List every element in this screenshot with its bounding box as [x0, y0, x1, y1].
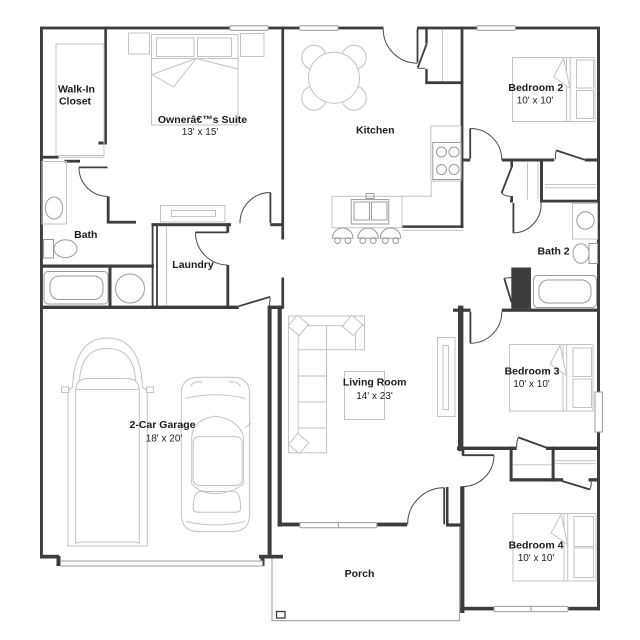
svg-text:Porch: Porch: [345, 568, 375, 580]
svg-text:14' x 23': 14' x 23': [356, 391, 393, 402]
svg-text:Laundry: Laundry: [172, 259, 214, 271]
svg-text:Walk-In: Walk-In: [58, 84, 95, 96]
svg-text:Kitchen: Kitchen: [356, 125, 395, 137]
svg-text:10' x 10': 10' x 10': [518, 553, 555, 564]
svg-text:10' x 10': 10' x 10': [513, 379, 550, 390]
svg-text:Ownerâ€™s Suite: Ownerâ€™s Suite: [158, 114, 247, 126]
svg-text:Bedroom 2: Bedroom 2: [508, 82, 563, 94]
svg-text:18' x 20': 18' x 20': [146, 434, 183, 445]
svg-text:Living Room: Living Room: [343, 376, 407, 388]
svg-text:Bath 2: Bath 2: [538, 246, 570, 258]
svg-text:Bath: Bath: [74, 229, 97, 241]
svg-text:10' x 10': 10' x 10': [517, 96, 554, 107]
svg-text:Bedroom 3: Bedroom 3: [505, 365, 560, 377]
svg-text:2-Car Garage: 2-Car Garage: [130, 419, 196, 431]
svg-text:13' x 15': 13' x 15': [182, 127, 219, 138]
svg-text:Bedroom 4: Bedroom 4: [509, 540, 564, 552]
svg-text:Closet: Closet: [59, 96, 92, 108]
